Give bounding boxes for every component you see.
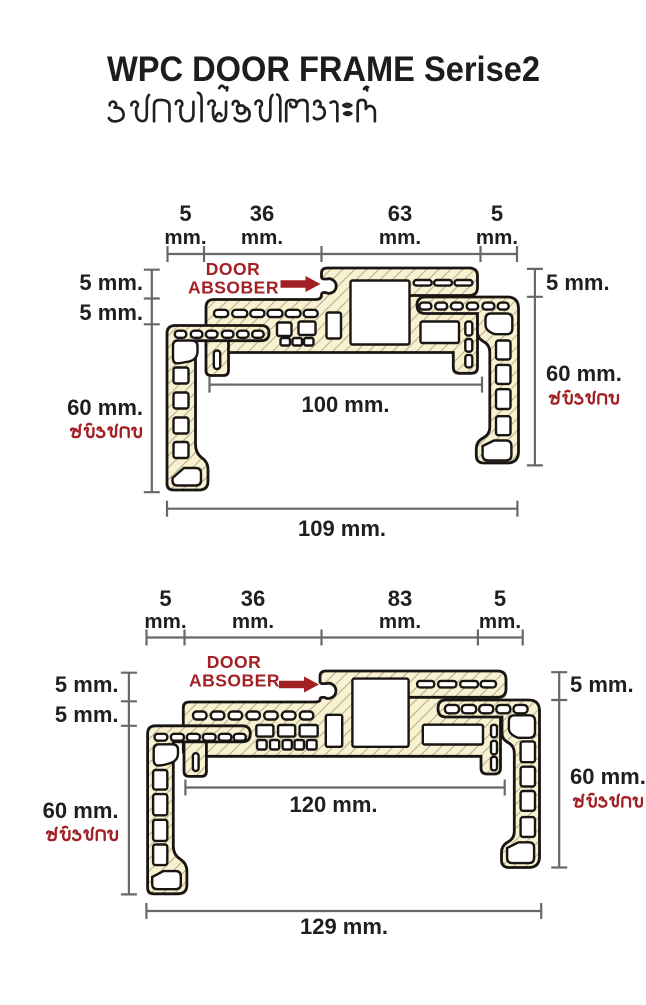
svg-text:36: 36: [241, 586, 265, 611]
svg-text:60 mm.: 60 mm.: [546, 361, 622, 386]
svg-text:5 mm.: 5 mm.: [79, 300, 143, 325]
svg-text:5: 5: [179, 201, 191, 226]
svg-text:ABSOBER: ABSOBER: [188, 278, 279, 298]
svg-text:mm.: mm.: [241, 226, 283, 249]
svg-text:60 mm.: 60 mm.: [43, 798, 119, 823]
svg-text:109 mm.: 109 mm.: [298, 516, 386, 541]
svg-text:63: 63: [388, 201, 412, 226]
svg-text:mm.: mm.: [144, 610, 186, 633]
svg-text:DOOR: DOOR: [206, 259, 261, 279]
svg-text:mm.: mm.: [479, 610, 521, 633]
svg-text:5: 5: [491, 201, 503, 226]
svg-text:60 mm.: 60 mm.: [570, 764, 646, 789]
svg-text:mm.: mm.: [232, 610, 274, 633]
svg-text:mm.: mm.: [379, 226, 421, 249]
svg-text:100 mm.: 100 mm.: [301, 392, 389, 417]
svg-text:83: 83: [388, 586, 412, 611]
svg-text:5 mm.: 5 mm.: [55, 672, 119, 697]
svg-text:5 mm.: 5 mm.: [55, 702, 119, 727]
svg-text:5: 5: [494, 586, 506, 611]
svg-text:mm.: mm.: [476, 226, 518, 249]
svg-text:5 mm.: 5 mm.: [546, 270, 610, 295]
svg-text:mm.: mm.: [379, 610, 421, 633]
svg-text:DOOR: DOOR: [207, 652, 262, 672]
svg-text:129 mm.: 129 mm.: [300, 914, 388, 939]
svg-text:5 mm.: 5 mm.: [570, 672, 634, 697]
svg-text:60 mm.: 60 mm.: [67, 395, 143, 420]
svg-text:mm.: mm.: [164, 226, 206, 249]
svg-text:5 mm.: 5 mm.: [79, 270, 143, 295]
svg-text:ABSOBER: ABSOBER: [189, 671, 280, 691]
svg-text:WPC DOOR FRAME Serise2: WPC DOOR FRAME Serise2: [107, 50, 540, 89]
svg-text:36: 36: [250, 201, 274, 226]
svg-text:5: 5: [159, 586, 171, 611]
svg-text:120 mm.: 120 mm.: [289, 792, 377, 817]
